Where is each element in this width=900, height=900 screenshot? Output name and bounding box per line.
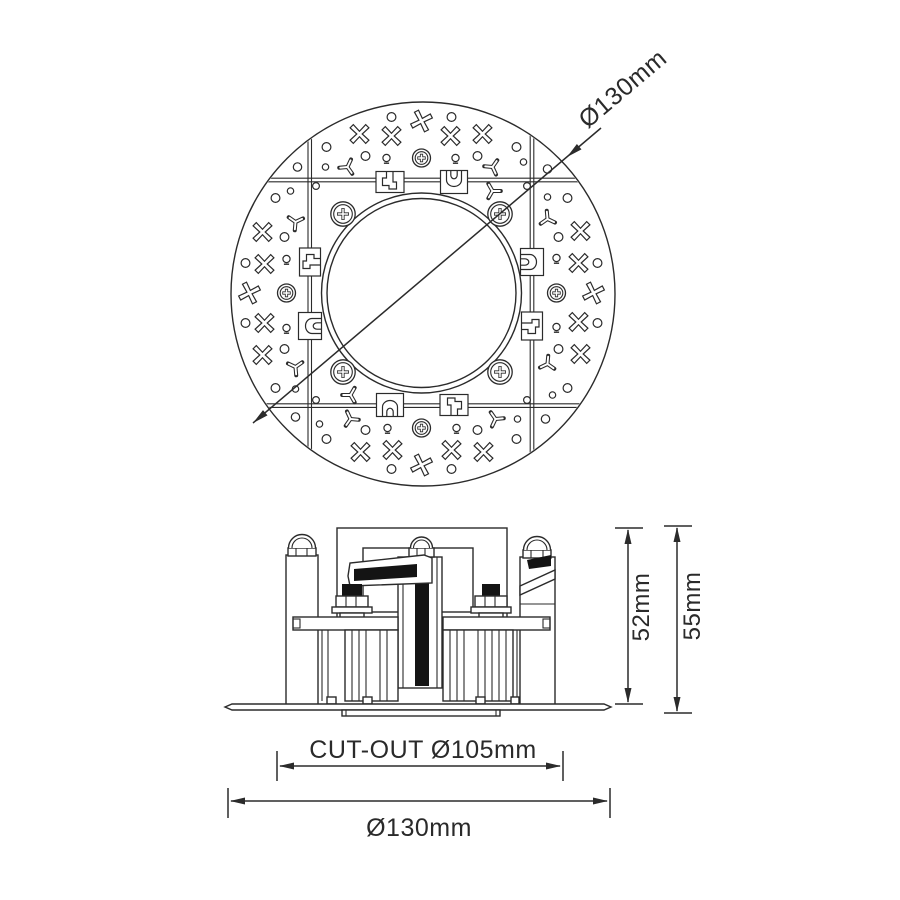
- hole-icon: [241, 319, 250, 328]
- phillips-screw-icon: [331, 202, 355, 226]
- x-perforation-icon: [441, 127, 460, 146]
- mounting-clip-icon: [441, 171, 468, 194]
- x-perforation-icon: [571, 345, 590, 364]
- hole-icon: [543, 165, 551, 173]
- hole-icon: [514, 416, 520, 422]
- x-perforation-icon: [383, 441, 402, 460]
- mounting-clip-icon: [376, 172, 404, 193]
- hole-icon: [554, 345, 563, 354]
- x-perforation-icon: [473, 125, 492, 144]
- x-perforation-icon: [410, 109, 434, 133]
- hole-icon: [520, 159, 526, 165]
- hole-icon: [291, 413, 299, 421]
- x-perforation-icon: [442, 441, 461, 460]
- trim-ring: [342, 710, 500, 716]
- hole-icon: [293, 163, 301, 171]
- mounting-clip-icon: [440, 395, 468, 416]
- x-perforation-icon: [238, 281, 262, 305]
- fixture-dimension-drawing: Ø130mm: [0, 0, 900, 900]
- hole-icon: [553, 254, 560, 261]
- dim-55-label: 55mm: [679, 572, 706, 641]
- y-perforation-icon: [484, 160, 502, 177]
- mounting-clip-icon: [300, 248, 321, 276]
- hole-icon: [283, 324, 290, 331]
- hole-icon: [322, 164, 328, 170]
- hole-icon: [473, 426, 482, 435]
- y-perforation-icon: [340, 408, 358, 425]
- dim-55: 55mm: [664, 526, 706, 713]
- hole-icon: [271, 194, 280, 203]
- hole-icon: [593, 259, 602, 268]
- left-nut-assembly: [332, 584, 372, 618]
- x-perforation-icon: [350, 125, 369, 144]
- hole-icon: [512, 143, 521, 152]
- hole-icon: [316, 421, 322, 427]
- x-perforation-icon: [582, 281, 606, 305]
- hole-icon: [453, 424, 460, 431]
- phillips-screw-icon: [278, 284, 296, 302]
- hole-icon: [313, 397, 320, 404]
- y-perforation-icon: [289, 212, 306, 230]
- hole-icon: [447, 465, 456, 474]
- technical-drawing-page: Ø130mm: [0, 0, 900, 900]
- hole-icon: [554, 233, 563, 242]
- hole-icon: [447, 113, 456, 122]
- x-perforation-icon: [253, 346, 272, 365]
- dim-top-diameter-label: Ø130mm: [573, 44, 672, 134]
- hole-icon: [387, 113, 396, 122]
- phillips-screw-icon: [331, 360, 355, 384]
- mounting-clip-icon: [522, 312, 543, 340]
- x-perforation-icon: [255, 314, 274, 333]
- dim-52-label: 52mm: [628, 573, 655, 642]
- phillips-screw-icon: [413, 149, 431, 167]
- hole-icon: [593, 319, 602, 328]
- hole-icon: [563, 384, 572, 393]
- center-black-bar: [415, 580, 429, 686]
- y-perforation-icon: [537, 356, 554, 374]
- base-flange: [225, 704, 611, 710]
- hole-icon: [241, 259, 250, 268]
- hole-icon: [322, 435, 331, 444]
- y-perforation-icon: [485, 412, 503, 429]
- y-perforation-icon: [342, 384, 361, 402]
- hole-icon: [549, 392, 555, 398]
- side-view: 52mm 55mm: [225, 526, 706, 716]
- mounting-clip-icon: [521, 249, 544, 276]
- hole-icon: [541, 415, 549, 423]
- y-perforation-icon: [541, 211, 558, 229]
- y-perforation-icon: [339, 156, 357, 173]
- mounting-clip-icon: [299, 313, 322, 340]
- x-perforation-icon: [255, 255, 274, 274]
- top-view: Ø130mm: [229, 44, 672, 488]
- y-perforation-icon: [482, 184, 501, 202]
- hole-icon: [512, 435, 521, 444]
- hole-icon: [313, 183, 320, 190]
- hole-icon: [322, 143, 331, 152]
- mounting-clip-icon: [377, 394, 404, 417]
- x-perforation-icon: [351, 443, 370, 462]
- x-perforation-icon: [569, 313, 588, 332]
- x-perforation-icon: [253, 223, 272, 242]
- x-perforation-icon: [474, 443, 493, 462]
- y-perforation-icon: [285, 357, 302, 375]
- dim-overall-label: Ø130mm: [366, 814, 472, 842]
- hole-icon: [524, 397, 531, 404]
- hole-icon: [473, 152, 482, 161]
- hole-icon: [361, 152, 370, 161]
- hole-icon: [563, 194, 572, 203]
- x-perforation-icon: [571, 222, 590, 241]
- x-perforation-icon: [382, 127, 401, 146]
- phillips-screw-icon: [413, 419, 431, 437]
- dim-cutout-label: CUT-OUT Ø105mm: [309, 736, 536, 764]
- hole-icon: [361, 426, 370, 435]
- cutout-dimension: CUT-OUT Ø105mm: [277, 736, 563, 781]
- x-perforation-icon: [410, 453, 434, 477]
- hole-icon: [287, 188, 293, 194]
- overall-diameter-dimension: Ø130mm: [228, 788, 610, 842]
- hole-icon: [544, 194, 550, 200]
- hole-icon: [384, 424, 391, 431]
- hole-icon: [452, 154, 459, 161]
- hole-icon: [387, 465, 396, 474]
- right-nut-assembly: [471, 584, 511, 618]
- hole-icon: [283, 255, 290, 262]
- hole-icon: [280, 233, 289, 242]
- phillips-screw-icon: [488, 360, 512, 384]
- dim-52: 52mm: [615, 528, 655, 704]
- phillips-screw-icon: [548, 284, 566, 302]
- hole-icon: [280, 345, 289, 354]
- x-perforation-icon: [569, 254, 588, 273]
- hole-icon: [383, 154, 390, 161]
- hole-icon: [271, 384, 280, 393]
- hole-icon: [553, 323, 560, 330]
